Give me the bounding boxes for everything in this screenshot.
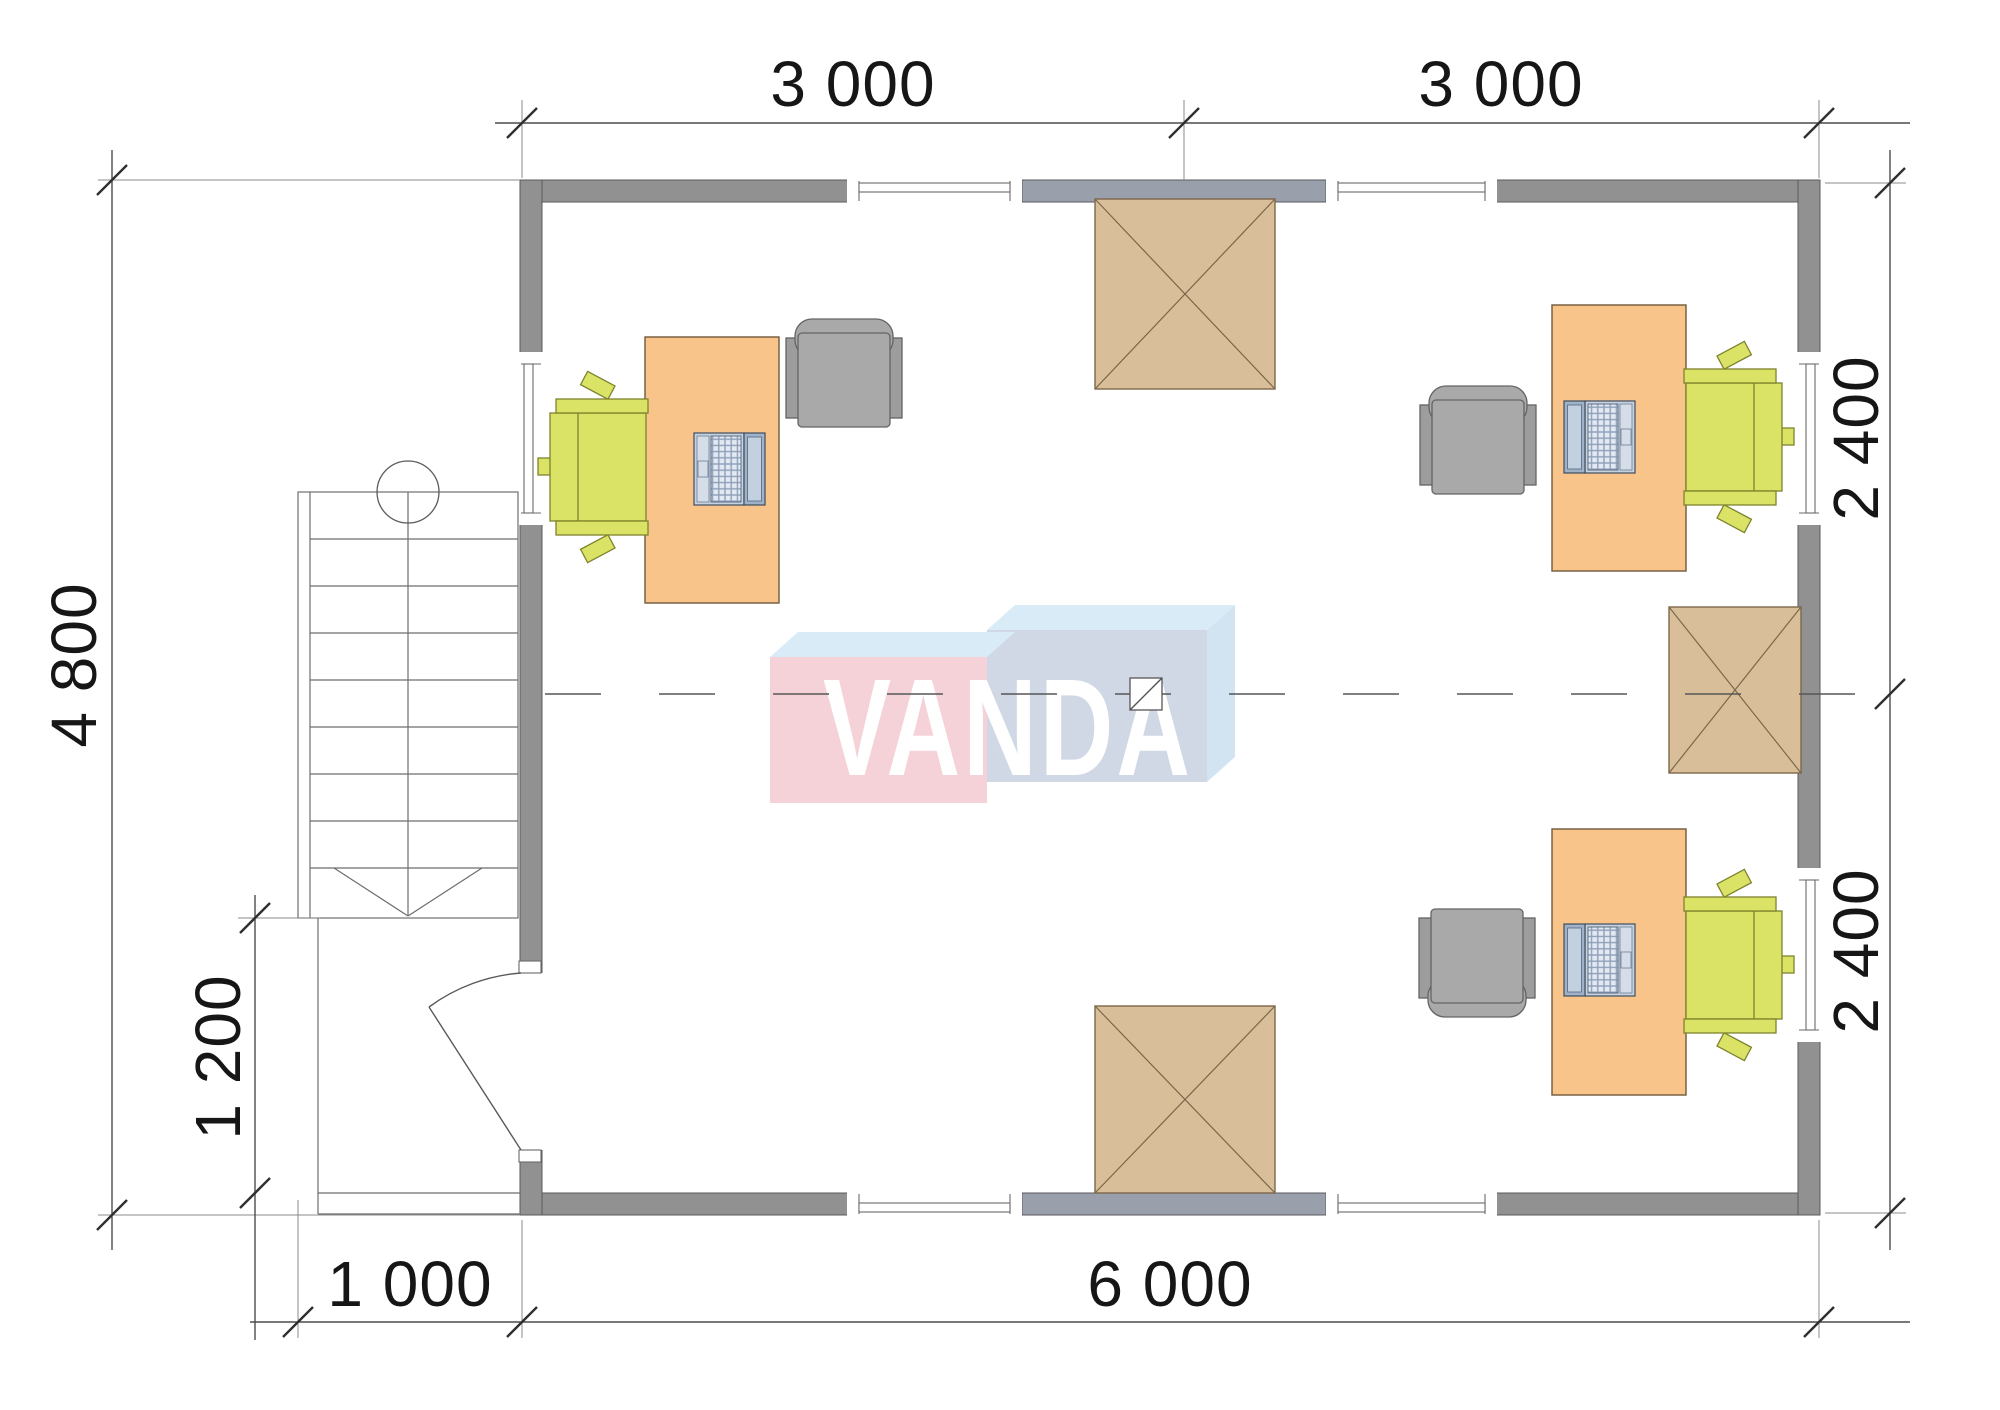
- vanda-logo-watermark: VANDA: [770, 605, 1235, 805]
- window-left: [519, 352, 543, 525]
- dim-label-top-right: 3 000: [1418, 48, 1583, 120]
- logo-blue-top-face: [987, 605, 1235, 630]
- task-chair: [1684, 869, 1794, 1060]
- dim-label-left-porch: 1 200: [182, 974, 254, 1139]
- dim-label-top-left: 3 000: [770, 48, 935, 120]
- dim-label-left-total: 4 800: [38, 582, 110, 747]
- roof-hatch-top: [1095, 199, 1275, 389]
- floor-plan-drawing: VANDA 3 000 3 000: [0, 0, 2000, 1410]
- entry-door: [429, 961, 543, 1162]
- roof-hatch-bottom: [1095, 1006, 1275, 1193]
- dimension-porch-depth: 1 200: [182, 895, 320, 1340]
- laptop: [1564, 924, 1635, 996]
- armchair: [1419, 909, 1535, 1017]
- window-top-right: [1326, 179, 1497, 203]
- armchair: [1420, 386, 1536, 494]
- dimension-top: 3 000 3 000: [495, 48, 1910, 180]
- dim-label-bottom-total: 6 000: [1087, 1248, 1252, 1320]
- logo-wordmark: VANDA: [823, 651, 1193, 805]
- window-bottom-left: [847, 1192, 1022, 1216]
- door-swing-arc: [429, 973, 521, 1007]
- dim-label-right-upper: 2 400: [1820, 355, 1892, 520]
- workstation-right-top: [1420, 305, 1794, 571]
- task-chair: [538, 371, 648, 562]
- laptop: [694, 433, 765, 505]
- floor-plan-canvas: VANDA 3 000 3 000: [0, 0, 2000, 1410]
- dimension-bottom: 1 000 6 000: [250, 1200, 1910, 1338]
- dim-label-right-lower: 2 400: [1820, 868, 1892, 1033]
- window-right-upper: [1797, 352, 1821, 525]
- task-chair: [1684, 341, 1794, 532]
- roof-hatch-right: [1669, 607, 1801, 773]
- dimension-right: 2 400 2 400: [1820, 150, 1906, 1250]
- laptop: [1564, 401, 1635, 473]
- window-right-lower: [1797, 868, 1821, 1042]
- wall-bottom-lintel: [1022, 1193, 1326, 1215]
- porch-landing: [318, 918, 520, 1214]
- armchair: [786, 319, 902, 427]
- window-top-left: [847, 179, 1022, 203]
- dim-label-bottom-porch: 1 000: [327, 1248, 492, 1320]
- door-leaf: [429, 1007, 521, 1150]
- window-bottom-right: [1326, 1192, 1497, 1216]
- workstation-right-bottom: [1419, 829, 1794, 1095]
- staircase: [298, 461, 518, 918]
- workstation-left: [538, 319, 902, 603]
